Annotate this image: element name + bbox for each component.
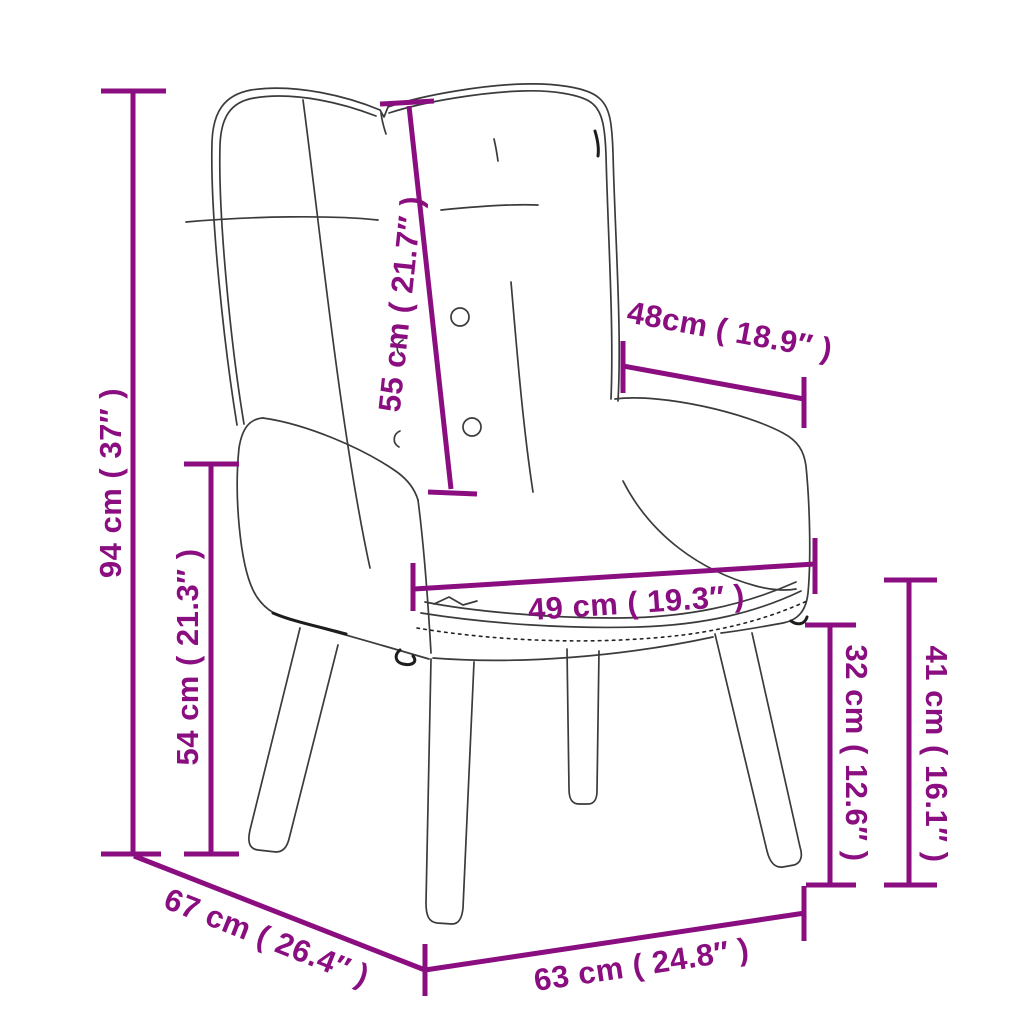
chair-back-crease-right xyxy=(441,205,538,210)
chair-back-right-seam xyxy=(511,282,533,492)
seat-curl-right xyxy=(791,617,807,624)
dim-label-54cm: 54 cm ( 21.3″ ) xyxy=(170,548,205,765)
dimension-overall-height: 94 cm ( 37″ ) xyxy=(93,91,166,854)
dim-label-55cm: 55 cm ( 21.7″ ) xyxy=(372,194,429,414)
dimension-under-seat-height: 32 cm ( 12.6″ ) xyxy=(805,625,874,885)
dimension-seat-width: 49 cm ( 19.3″ ) xyxy=(413,538,815,627)
chair-back-upper-crease xyxy=(494,139,498,161)
button-crease-bottom xyxy=(394,431,400,447)
dim-line xyxy=(623,366,804,399)
leg-front-left xyxy=(426,659,474,924)
chair-line-drawing xyxy=(186,84,810,924)
leg-rear-left xyxy=(249,628,338,852)
dim-tick xyxy=(380,101,434,104)
armrest-left-front xyxy=(418,500,431,653)
chair-back-top-notch xyxy=(380,107,388,134)
dimension-seat-height: 41 cm ( 16.1″ ) xyxy=(884,580,954,885)
leg-rear-right xyxy=(567,649,599,804)
dimension-overall-width: 63 cm ( 24.8″ ) xyxy=(425,886,805,998)
seat-fold-marks xyxy=(434,597,477,605)
dimension-overall-depth: 67 cm ( 26.4″ ) xyxy=(134,856,425,993)
dimension-armrest-depth: 48cm ( 18.9″ ) xyxy=(623,295,835,428)
dim-label-63cm: 63 cm ( 24.8″ ) xyxy=(532,931,752,998)
leg-front-right xyxy=(715,633,801,867)
upholstery-button-top xyxy=(451,308,469,326)
chair-back-inner-left xyxy=(220,96,376,424)
armrest-left-top xyxy=(263,418,418,500)
chair-dimension-diagram: 94 cm ( 37″ ) 54 cm ( 21.3″ ) 55 cm ( 21… xyxy=(0,0,1024,1024)
dim-label-94cm: 94 cm ( 37″ ) xyxy=(93,388,128,578)
chair-back-left-seam xyxy=(303,100,370,568)
armrest-left-outer xyxy=(237,418,429,659)
dimension-armrest-height: 54 cm ( 21.3″ ) xyxy=(170,464,239,854)
dim-label-48cm: 48cm ( 18.9″ ) xyxy=(624,295,835,367)
dim-label-41cm: 41 cm ( 16.1″ ) xyxy=(919,645,954,862)
dimension-diagram-page: 94 cm ( 37″ ) 54 cm ( 21.3″ ) 55 cm ( 21… xyxy=(0,0,1024,1024)
upholstery-button-bottom xyxy=(463,418,481,436)
dim-tick xyxy=(428,492,477,494)
chair-back-edge-shadow xyxy=(595,131,598,156)
dim-label-32cm: 32 cm ( 12.6″ ) xyxy=(839,644,874,861)
dimension-backrest-length: 55 cm ( 21.7″ ) xyxy=(372,101,477,494)
armrest-left-shadow xyxy=(273,613,346,634)
